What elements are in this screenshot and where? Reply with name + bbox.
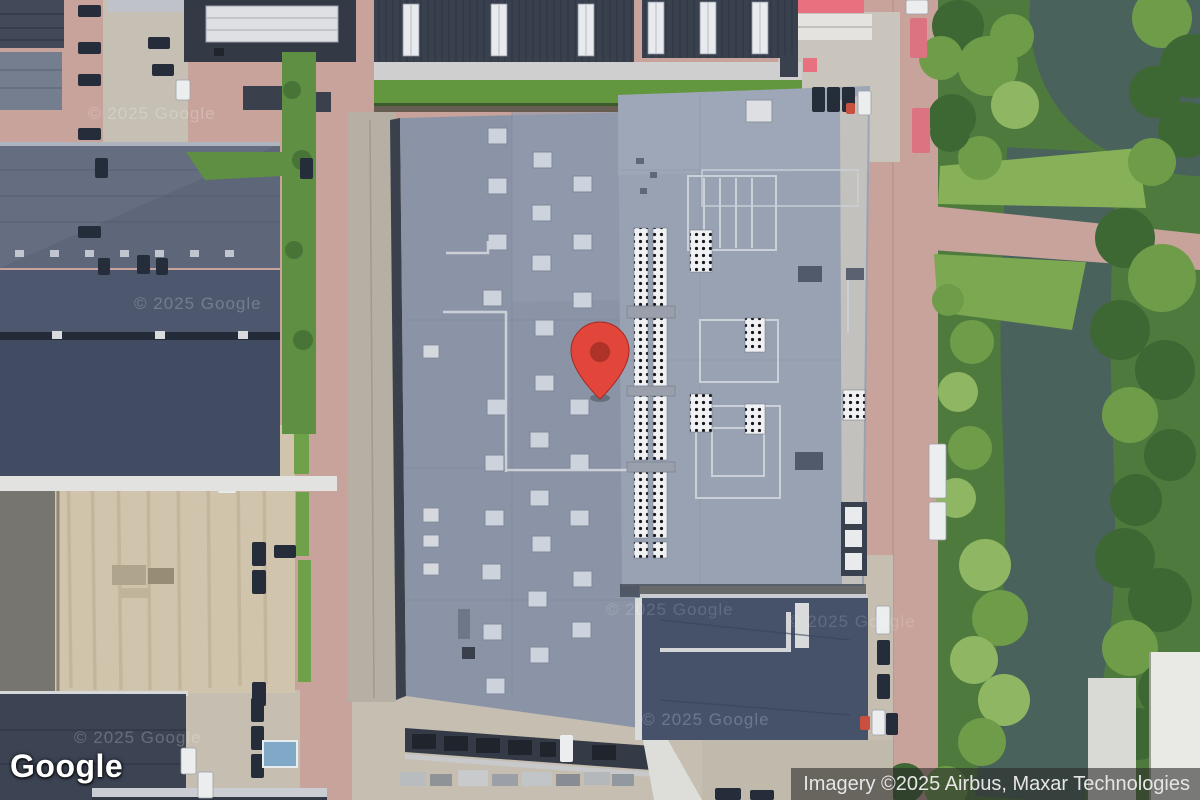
blue-container	[263, 741, 297, 767]
google-logo[interactable]: Google	[10, 748, 123, 785]
imagery-attribution: Imagery ©2025 Airbus, Maxar Technologies	[791, 768, 1200, 800]
red-roof-building	[798, 0, 864, 13]
satellite-imagery	[0, 0, 1200, 800]
attribution-text: Imagery ©2025 Airbus, Maxar Technologies	[803, 773, 1190, 796]
map-canvas[interactable]: © 2025 Google © 2025 Google © 2025 Googl…	[0, 0, 1200, 800]
